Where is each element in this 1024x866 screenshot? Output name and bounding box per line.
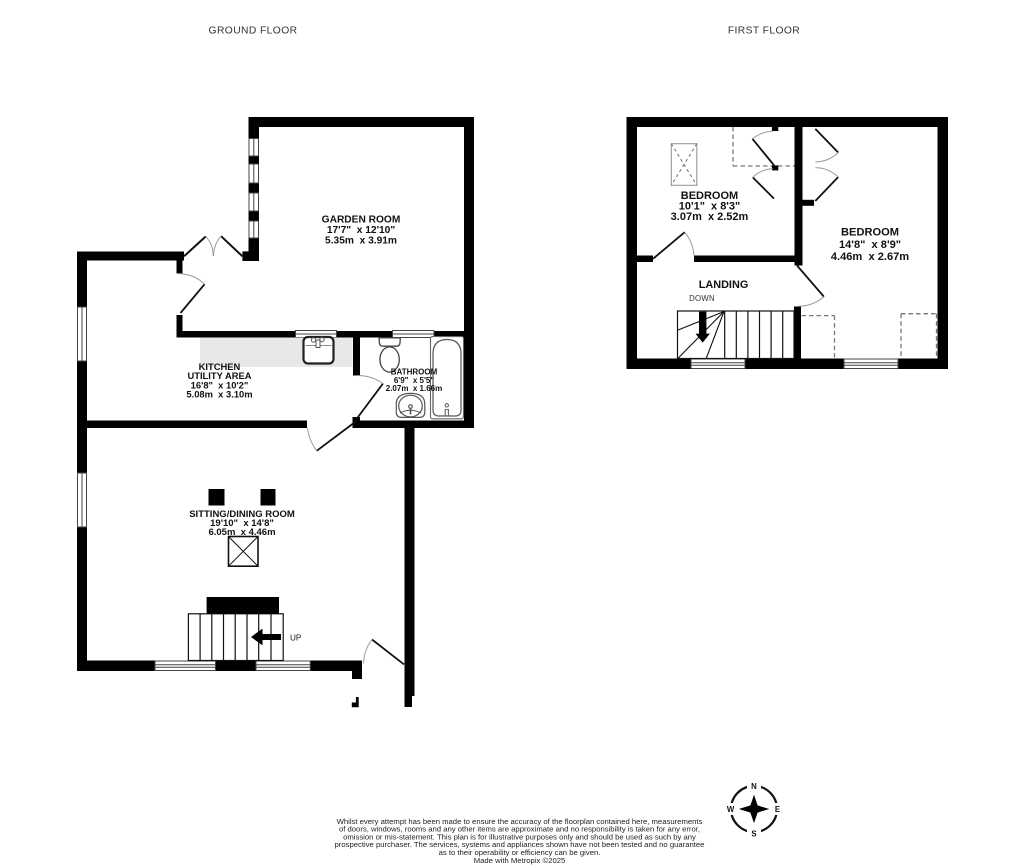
svg-text:14'8" x 8'9": 14'8" x 8'9" bbox=[839, 239, 901, 251]
svg-text:6.05m x 4.46m: 6.05m x 4.46m bbox=[208, 527, 275, 538]
svg-text:2.07m x 1.66m: 2.07m x 1.66m bbox=[386, 384, 442, 393]
svg-text:N: N bbox=[751, 782, 757, 791]
svg-text:5.08m x 3.10m: 5.08m x 3.10m bbox=[186, 389, 252, 400]
svg-text:3.07m x 2.52m: 3.07m x 2.52m bbox=[671, 211, 749, 223]
svg-text:GROUND FLOOR: GROUND FLOOR bbox=[209, 26, 298, 37]
svg-text:FIRST FLOOR: FIRST FLOOR bbox=[728, 26, 800, 37]
svg-text:4.46m x 2.67m: 4.46m x 2.67m bbox=[831, 251, 909, 263]
svg-text:BEDROOM: BEDROOM bbox=[841, 227, 899, 239]
svg-text:UP: UP bbox=[290, 634, 302, 643]
svg-text:17'7" x 12'10": 17'7" x 12'10" bbox=[327, 225, 395, 236]
svg-text:GARDEN ROOM: GARDEN ROOM bbox=[322, 214, 401, 225]
svg-text:W: W bbox=[727, 805, 735, 814]
svg-text:DOWN: DOWN bbox=[689, 294, 715, 303]
svg-text:5.35m x 3.91m: 5.35m x 3.91m bbox=[325, 235, 397, 246]
svg-text:S: S bbox=[751, 830, 756, 839]
svg-text:Made with Metropix ©2025: Made with Metropix ©2025 bbox=[474, 856, 566, 865]
svg-text:LANDING: LANDING bbox=[699, 279, 749, 291]
svg-text:E: E bbox=[775, 805, 780, 814]
